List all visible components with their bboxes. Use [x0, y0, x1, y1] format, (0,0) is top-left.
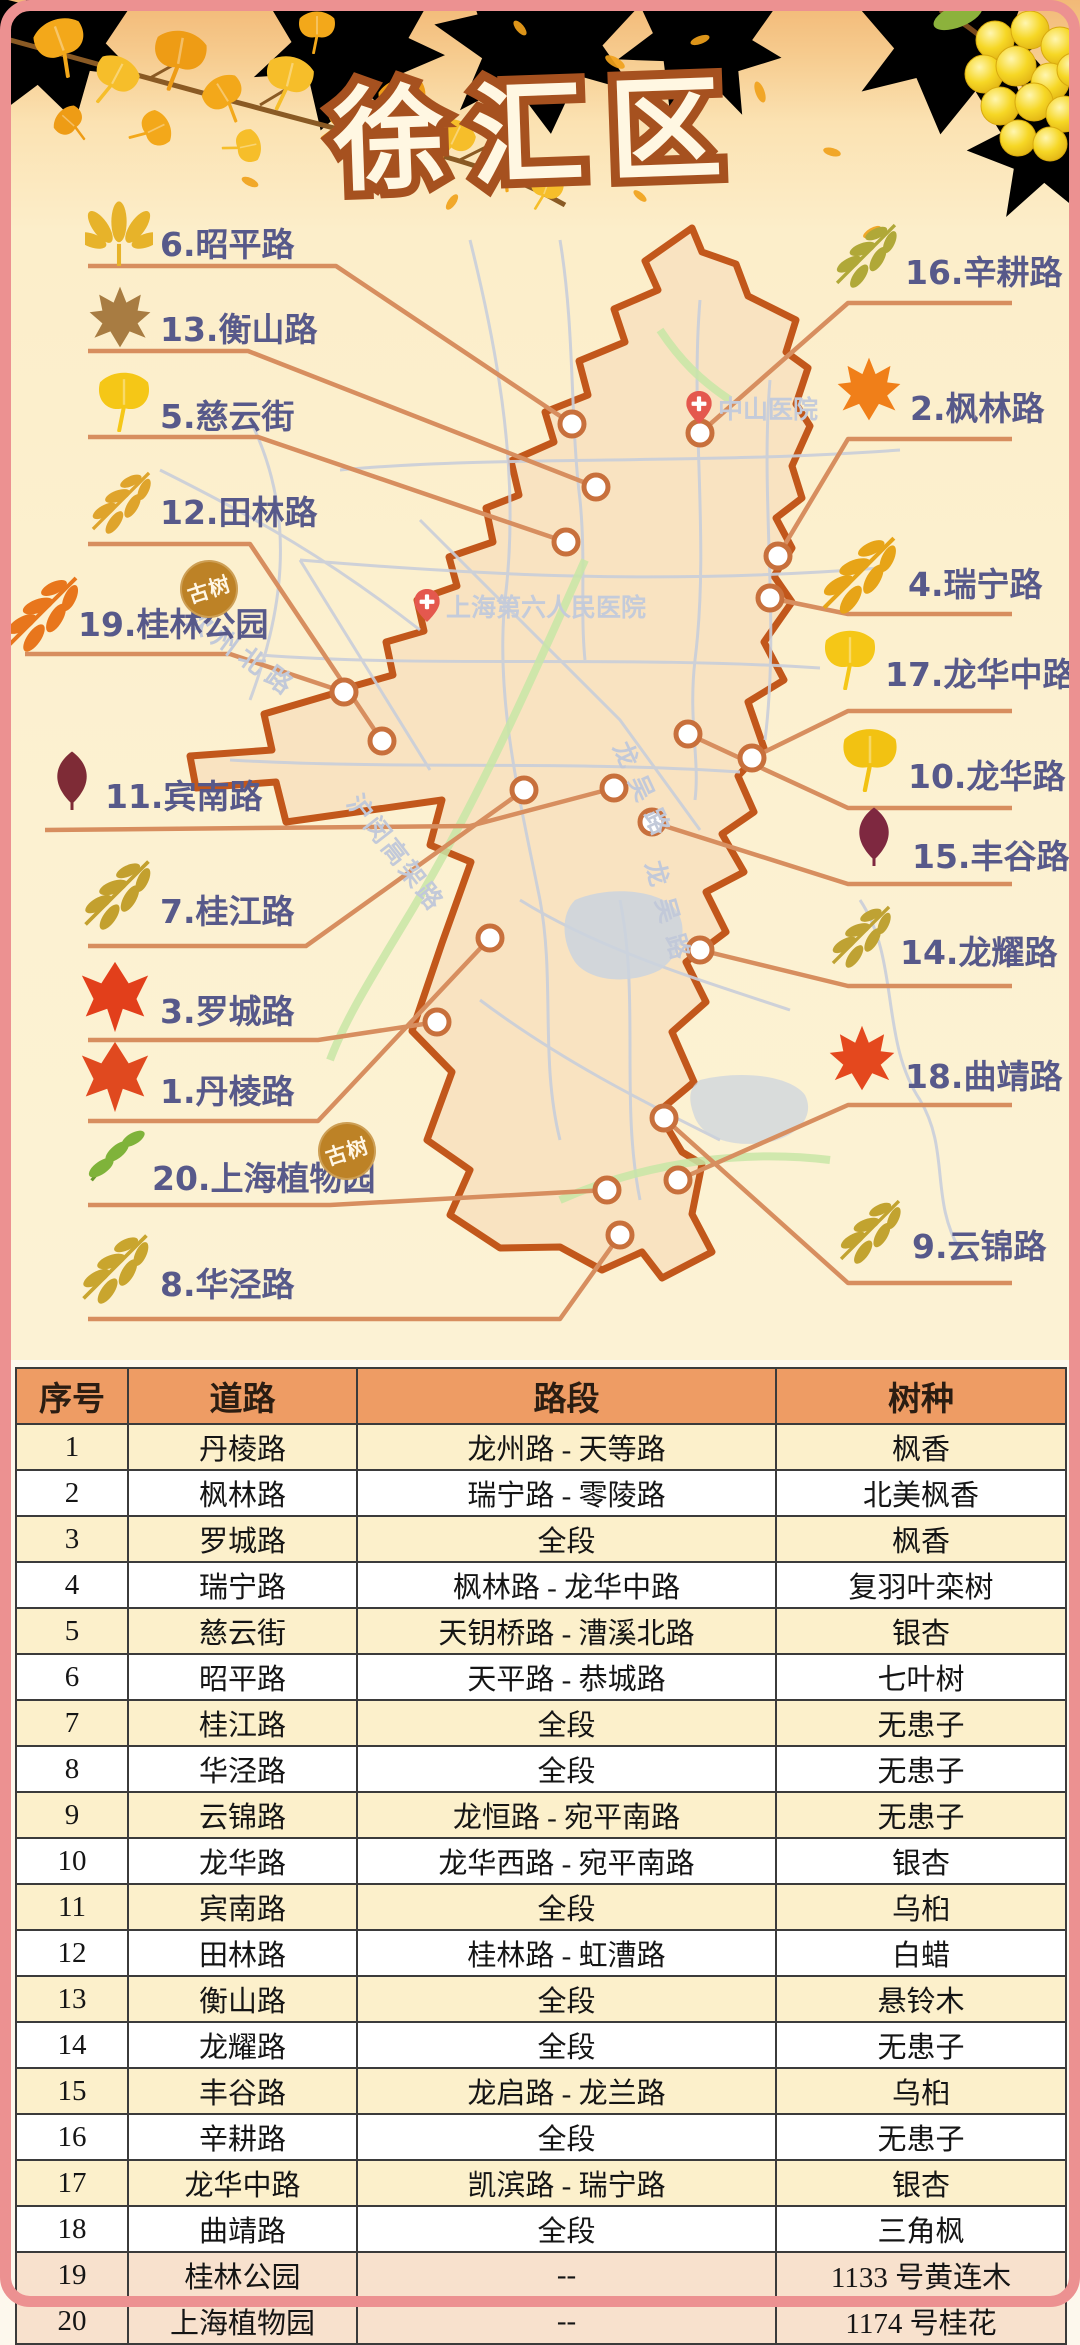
leaf-icon-compound	[832, 220, 900, 288]
table-cell: 龙启路 - 龙兰路	[357, 2068, 776, 2114]
hospital-pin-icon	[686, 391, 712, 425]
leaf-icon-compound	[80, 856, 154, 930]
leaf-icon-maple3	[76, 958, 154, 1036]
table-cell: 凯滨路 - 瑞宁路	[357, 2160, 776, 2206]
hospital-label: 上海第六人民医院	[446, 588, 646, 624]
road-callout-3: 3.罗城路	[160, 985, 295, 1033]
leaf-icon-compound	[828, 902, 894, 968]
table-cell: 丰谷路	[128, 2068, 357, 2114]
table-cell: 无患子	[776, 1700, 1066, 1746]
table-cell: 1	[16, 1424, 128, 1470]
road-callout-13: 13.衡山路	[160, 303, 317, 351]
table-cell: 上海植物园	[128, 2298, 357, 2344]
table-cell: 银杏	[776, 1838, 1066, 1884]
road-callout-6: 6.昭平路	[160, 218, 295, 266]
table-cell: 罗城路	[128, 1516, 357, 1562]
table-cell: 全段	[357, 2114, 776, 2160]
table-cell: 19	[16, 2252, 128, 2298]
table-cell: 辛耕路	[128, 2114, 357, 2160]
table-cell: 14	[16, 2022, 128, 2068]
table-cell: 1174 号桂花	[776, 2298, 1066, 2344]
table-cell: --	[357, 2298, 776, 2344]
table-cell: 全段	[357, 1976, 776, 2022]
table-cell: 白蜡	[776, 1930, 1066, 1976]
table-row: 9云锦路龙恒路 - 宛平南路无患子	[16, 1792, 1066, 1838]
table-row: 19桂林公园--1133 号黄连木	[16, 2252, 1066, 2298]
table-cell: 11	[16, 1884, 128, 1930]
table-row: 4瑞宁路枫林路 - 龙华中路复羽叶栾树	[16, 1562, 1066, 1608]
table-cell: 12	[16, 1930, 128, 1976]
table-cell: 无患子	[776, 1746, 1066, 1792]
column-header-road: 道路	[128, 1368, 357, 1424]
table-cell: 2	[16, 1470, 128, 1516]
table-cell: 北美枫香	[776, 1470, 1066, 1516]
table-cell: 三角枫	[776, 2206, 1066, 2252]
table-cell: 全段	[357, 1700, 776, 1746]
road-callout-5: 5.慈云街	[160, 390, 295, 438]
table-cell: 无患子	[776, 1792, 1066, 1838]
table-cell: 全段	[357, 2206, 776, 2252]
table-row: 12田林路桂林路 - 虹漕路白蜡	[16, 1930, 1066, 1976]
table-cell: 龙华路	[128, 1838, 357, 1884]
table-row: 8华泾路全段无患子	[16, 1746, 1066, 1792]
table-cell: 华泾路	[128, 1746, 357, 1792]
table-cell: 全段	[357, 1516, 776, 1562]
leaf-icon-palmate	[85, 198, 153, 266]
table-cell: 16	[16, 2114, 128, 2160]
table-cell: 20	[16, 2298, 128, 2344]
leaf-icon-ginkgo	[836, 724, 904, 792]
table-cell: 全段	[357, 2022, 776, 2068]
leaf-icon-compound	[836, 1196, 904, 1264]
table-row: 14龙耀路全段无患子	[16, 2022, 1066, 2068]
table-cell: 10	[16, 1838, 128, 1884]
table-cell: 枫香	[776, 1424, 1066, 1470]
table-cell: 全段	[357, 1884, 776, 1930]
leaf-icon-compound	[88, 468, 154, 534]
table-cell: 8	[16, 1746, 128, 1792]
table-cell: 18	[16, 2206, 128, 2252]
table-row: 1丹棱路龙州路 - 天等路枫香	[16, 1424, 1066, 1470]
table-row: 20上海植物园--1174 号桂花	[16, 2298, 1066, 2344]
table-cell: 宾南路	[128, 1884, 357, 1930]
table-cell: 天平路 - 恭城路	[357, 1654, 776, 1700]
table-cell: 云锦路	[128, 1792, 357, 1838]
table-row: 18曲靖路全段三角枫	[16, 2206, 1066, 2252]
table-cell: 13	[16, 1976, 128, 2022]
leaf-icon-ginkgo	[92, 368, 156, 432]
table-cell: 银杏	[776, 2160, 1066, 2206]
table-cell: 龙州路 - 天等路	[357, 1424, 776, 1470]
table-cell: 复羽叶栾树	[776, 1562, 1066, 1608]
leaf-icon-simple	[844, 806, 904, 866]
table-cell: 银杏	[776, 1608, 1066, 1654]
leaf-icon-maple3	[76, 1038, 154, 1116]
road-callout-12: 12.田林路	[160, 486, 317, 534]
table-cell: 丹棱路	[128, 1424, 357, 1470]
table-cell: 枫林路	[128, 1470, 357, 1516]
table-cell: 七叶树	[776, 1654, 1066, 1700]
table-cell: 瑞宁路 - 零陵路	[357, 1470, 776, 1516]
leaf-icon-ginkgo	[818, 626, 882, 690]
table-cell: 衡山路	[128, 1976, 357, 2022]
table-cell: 全段	[357, 1746, 776, 1792]
table-cell: 7	[16, 1700, 128, 1746]
leaf-icon-maple5	[88, 285, 152, 349]
table-cell: 慈云街	[128, 1608, 357, 1654]
road-callout-8: 8.华泾路	[160, 1258, 295, 1306]
road-callout-11: 11.宾南路	[105, 770, 262, 818]
road-callout-2: 2.枫林路	[910, 382, 1045, 430]
table-cell: 15	[16, 2068, 128, 2114]
table-cell: 田林路	[128, 1930, 357, 1976]
hospital-marker-sixth-peoples: 上海第六人民医院	[414, 588, 646, 624]
table-row: 10龙华路龙华西路 - 宛平南路银杏	[16, 1838, 1066, 1884]
table-cell: 龙华中路	[128, 2160, 357, 2206]
table-row: 17龙华中路凯滨路 - 瑞宁路银杏	[16, 2160, 1066, 2206]
leaf-icon-sprig	[82, 1126, 146, 1190]
leaf-icon-compound	[818, 532, 900, 614]
road-callout-17: 17.龙华中路	[885, 648, 1075, 696]
table-cell: 桂江路	[128, 1700, 357, 1746]
table-cell: 4	[16, 1562, 128, 1608]
leaf-icon-maple5	[836, 356, 902, 422]
column-header-segment: 路段	[357, 1368, 776, 1424]
table-cell: 9	[16, 1792, 128, 1838]
road-callout-19: 19.桂林公园	[78, 598, 268, 646]
table-row: 13衡山路全段悬铃木	[16, 1976, 1066, 2022]
column-header-species: 树种	[776, 1368, 1066, 1424]
table-cell: 龙华西路 - 宛平南路	[357, 1838, 776, 1884]
roads-table: 序号 道路 路段 树种 1丹棱路龙州路 - 天等路枫香2枫林路瑞宁路 - 零陵路…	[15, 1367, 1067, 2345]
table-cell: 5	[16, 1608, 128, 1654]
table-cell: --	[357, 2252, 776, 2298]
table-cell: 瑞宁路	[128, 1562, 357, 1608]
hospital-pin-icon	[414, 589, 440, 623]
table-row: 11宾南路全段乌桕	[16, 1884, 1066, 1930]
table-cell: 天钥桥路 - 漕溪北路	[357, 1608, 776, 1654]
table-row: 16辛耕路全段无患子	[16, 2114, 1066, 2160]
road-callout-7: 7.桂江路	[160, 885, 295, 933]
road-callout-18: 18.曲靖路	[905, 1050, 1062, 1098]
table-row: 6昭平路天平路 - 恭城路七叶树	[16, 1654, 1066, 1700]
table-cell: 乌桕	[776, 2068, 1066, 2114]
table-cell: 无患子	[776, 2114, 1066, 2160]
hospital-marker-zhongshan: 中山医院	[686, 390, 818, 426]
table-row: 7桂江路全段无患子	[16, 1700, 1066, 1746]
road-callout-15: 15.丰谷路	[912, 830, 1069, 878]
table-cell: 17	[16, 2160, 128, 2206]
table-cell: 1133 号黄连木	[776, 2252, 1066, 2298]
table-cell: 昭平路	[128, 1654, 357, 1700]
table-cell: 乌桕	[776, 1884, 1066, 1930]
table-cell: 枫林路 - 龙华中路	[357, 1562, 776, 1608]
road-callout-4: 4.瑞宁路	[908, 558, 1043, 606]
leaf-icon-compound	[78, 1230, 152, 1304]
table-row: 2枫林路瑞宁路 - 零陵路北美枫香	[16, 1470, 1066, 1516]
leaf-icon-compound	[2, 572, 82, 652]
road-callout-9: 9.云锦路	[912, 1220, 1047, 1268]
table-row: 15丰谷路龙启路 - 龙兰路乌桕	[16, 2068, 1066, 2114]
column-header-index: 序号	[16, 1368, 128, 1424]
page-title: 徐汇区 徐汇区	[0, 44, 1080, 194]
table-cell: 3	[16, 1516, 128, 1562]
table-cell: 枫香	[776, 1516, 1066, 1562]
table-cell: 桂林路 - 虹漕路	[357, 1930, 776, 1976]
table-cell: 无患子	[776, 2022, 1066, 2068]
road-callout-14: 14.龙耀路	[900, 926, 1057, 974]
table-header-row: 序号 道路 路段 树种	[16, 1368, 1066, 1424]
table-row: 3罗城路全段枫香	[16, 1516, 1066, 1562]
road-callout-16: 16.辛耕路	[905, 246, 1062, 294]
table-cell: 曲靖路	[128, 2206, 357, 2252]
leaf-icon-maple5	[828, 1024, 896, 1092]
table-cell: 桂林公园	[128, 2252, 357, 2298]
table-cell: 6	[16, 1654, 128, 1700]
hospital-label: 中山医院	[718, 390, 818, 426]
table-cell: 悬铃木	[776, 1976, 1066, 2022]
road-callout-10: 10.龙华路	[908, 750, 1065, 798]
leaf-icon-simple	[42, 750, 102, 810]
table-cell: 龙恒路 - 宛平南路	[357, 1792, 776, 1838]
table-cell: 龙耀路	[128, 2022, 357, 2068]
table-row: 5慈云街天钥桥路 - 漕溪北路银杏	[16, 1608, 1066, 1654]
road-callout-1: 1.丹棱路	[160, 1065, 295, 1113]
